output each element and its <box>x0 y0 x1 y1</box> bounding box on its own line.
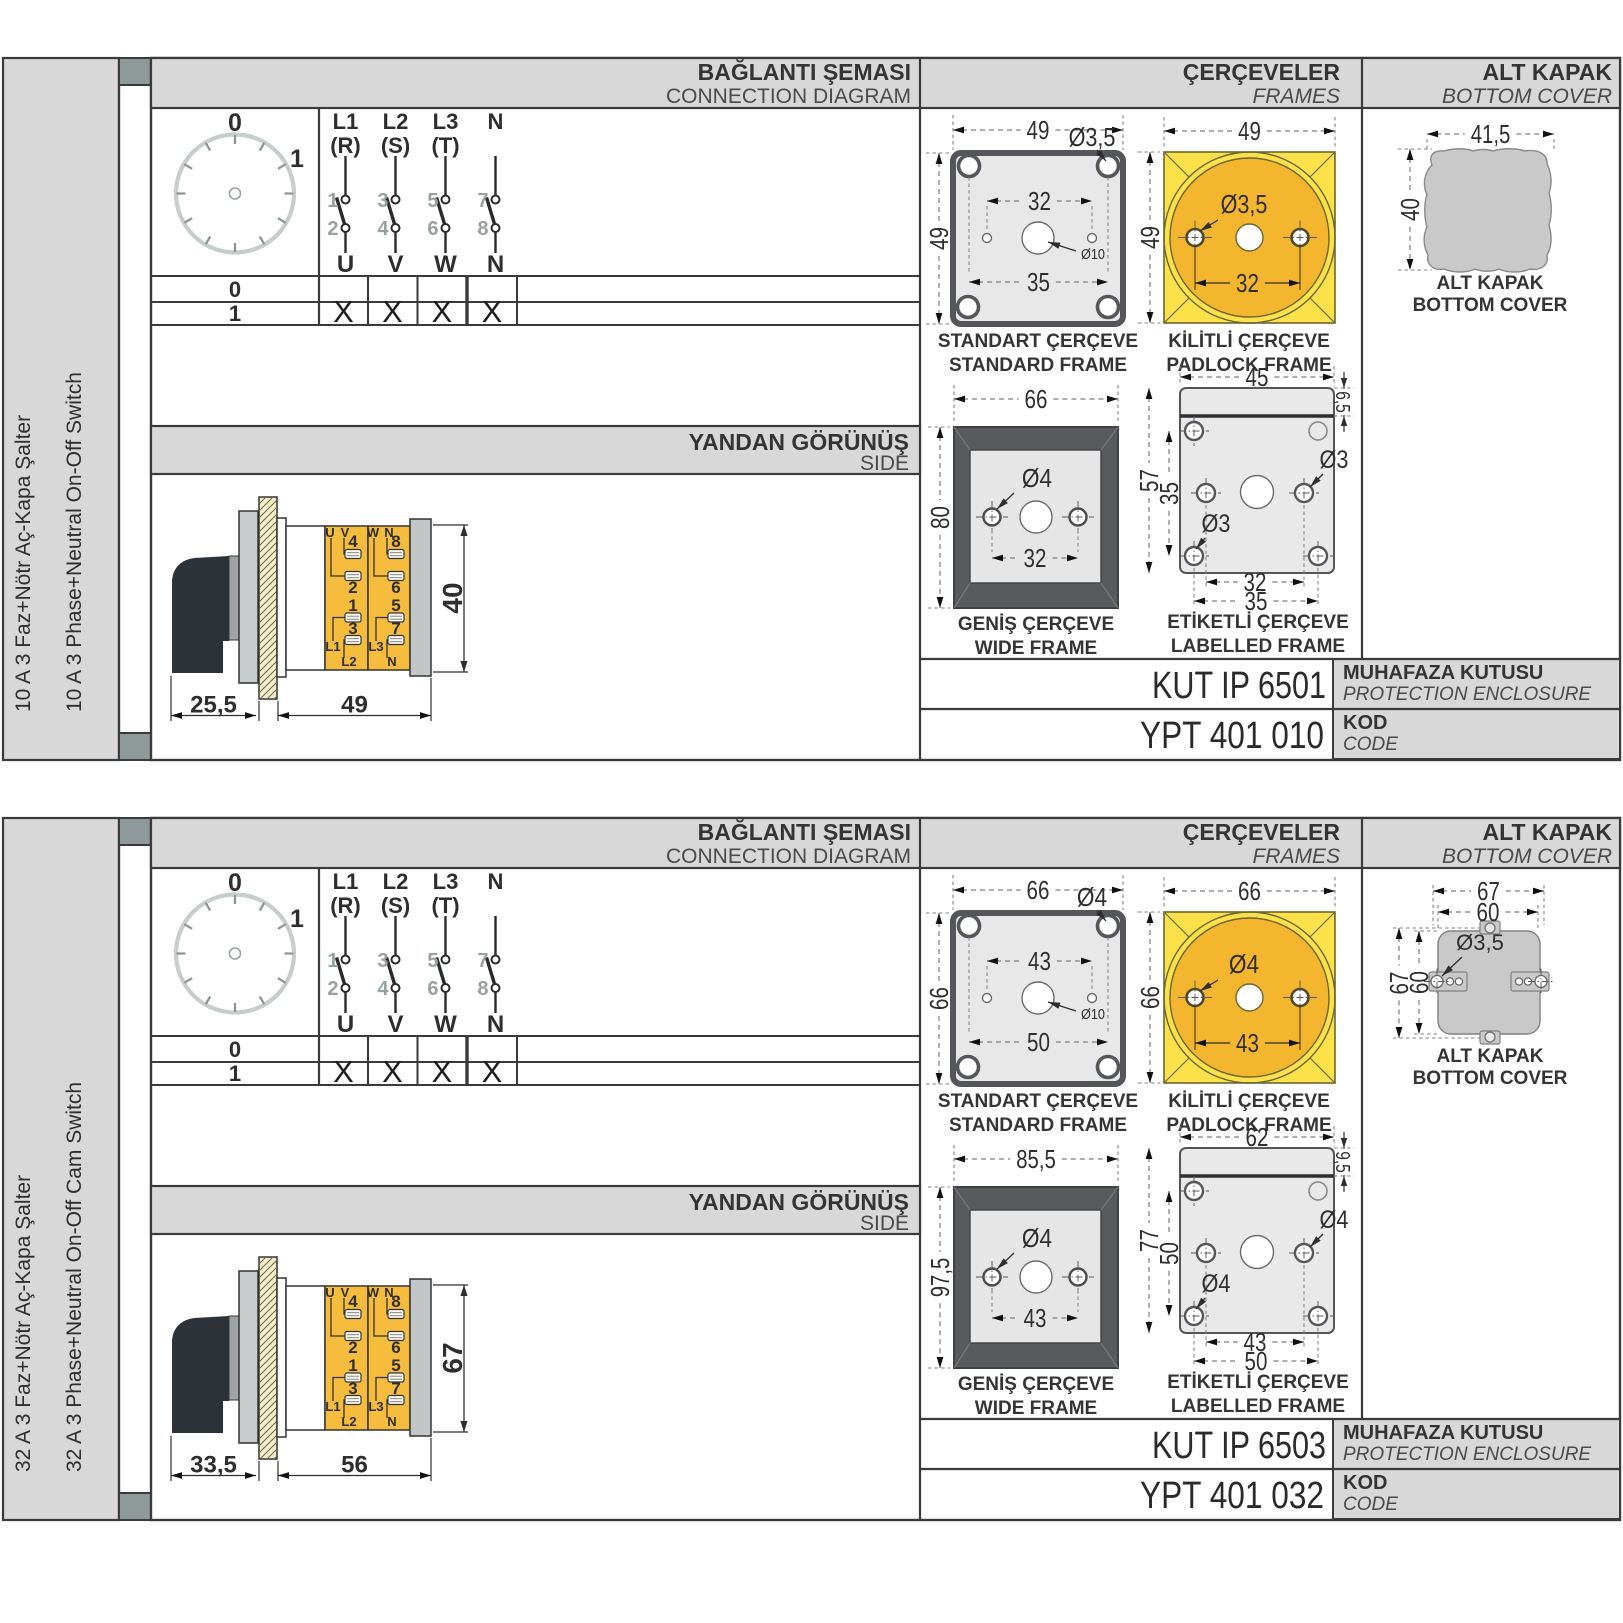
svg-text:6: 6 <box>427 978 438 1000</box>
svg-text:2: 2 <box>327 218 338 240</box>
svg-text:U: U <box>337 1011 354 1038</box>
svg-text:8: 8 <box>391 1292 400 1311</box>
svg-text:67: 67 <box>437 1342 468 1373</box>
svg-text:ETİKETLİ ÇERÇEVE: ETİKETLİ ÇERÇEVE <box>1167 1372 1349 1393</box>
svg-text:1: 1 <box>290 145 304 173</box>
svg-text:ALT KAPAK: ALT KAPAK <box>1483 819 1613 845</box>
svg-text:LABELLED FRAME: LABELLED FRAME <box>1171 636 1345 657</box>
svg-text:0: 0 <box>228 109 242 137</box>
svg-text:49: 49 <box>1135 226 1165 249</box>
svg-text:32: 32 <box>1028 186 1051 216</box>
svg-text:LABELLED FRAME: LABELLED FRAME <box>1171 1396 1345 1417</box>
svg-text:45: 45 <box>1246 362 1269 392</box>
svg-text:STANDARD FRAME: STANDARD FRAME <box>949 1115 1127 1136</box>
svg-text:60: 60 <box>1404 971 1434 994</box>
svg-text:43: 43 <box>1024 1303 1047 1333</box>
svg-text:2: 2 <box>348 1338 357 1357</box>
svg-text:W: W <box>434 1011 457 1038</box>
svg-text:WIDE FRAME: WIDE FRAME <box>975 1398 1097 1419</box>
svg-text:80: 80 <box>925 506 955 529</box>
svg-text:5: 5 <box>391 596 400 615</box>
svg-text:BOTTOM COVER: BOTTOM COVER <box>1442 85 1612 108</box>
svg-text:Ø4: Ø4 <box>1022 1223 1052 1253</box>
svg-text:ALT KAPAK: ALT KAPAK <box>1483 59 1613 85</box>
svg-text:ÇERÇEVELER: ÇERÇEVELER <box>1183 819 1341 845</box>
svg-text:3: 3 <box>377 190 388 212</box>
svg-text:L1: L1 <box>333 869 359 894</box>
svg-text:CODE: CODE <box>1343 1494 1398 1515</box>
svg-text:L3: L3 <box>433 109 459 134</box>
svg-text:7: 7 <box>477 190 488 212</box>
svg-text:GENİŞ ÇERÇEVE: GENİŞ ÇERÇEVE <box>958 1374 1114 1395</box>
svg-text:49: 49 <box>1238 116 1261 146</box>
svg-text:SIDE: SIDE <box>860 452 909 475</box>
svg-text:5: 5 <box>427 950 438 972</box>
svg-text:FRAMES: FRAMES <box>1252 845 1340 868</box>
svg-text:N: N <box>387 1414 396 1429</box>
svg-text:1: 1 <box>327 190 338 212</box>
svg-text:STANDARD FRAME: STANDARD FRAME <box>949 355 1127 376</box>
svg-text:3: 3 <box>377 950 388 972</box>
svg-text:0: 0 <box>229 1037 241 1062</box>
svg-text:YPT 401 010: YPT 401 010 <box>1140 715 1324 757</box>
svg-text:CONNECTION DIAGRAM: CONNECTION DIAGRAM <box>666 85 911 108</box>
svg-text:YPT 401 032: YPT 401 032 <box>1140 1475 1324 1517</box>
svg-text:Ø10: Ø10 <box>1081 1006 1105 1023</box>
svg-text:ETİKETLİ ÇERÇEVE: ETİKETLİ ÇERÇEVE <box>1167 612 1349 633</box>
svg-text:25,5: 25,5 <box>190 692 237 719</box>
svg-text:PROTECTION ENCLOSURE: PROTECTION ENCLOSURE <box>1343 684 1591 705</box>
svg-text:BOTTOM COVER: BOTTOM COVER <box>1413 1068 1568 1089</box>
svg-text:L2: L2 <box>383 109 409 134</box>
svg-text:8: 8 <box>391 532 400 551</box>
svg-text:CONNECTION DIAGRAM: CONNECTION DIAGRAM <box>666 845 911 868</box>
svg-text:L3: L3 <box>368 639 383 654</box>
svg-text:1: 1 <box>348 1356 357 1375</box>
svg-text:56: 56 <box>341 1452 368 1479</box>
svg-text:4: 4 <box>348 532 358 551</box>
svg-text:3: 3 <box>348 1379 357 1398</box>
svg-text:(R): (R) <box>330 133 361 158</box>
svg-text:BAĞLANTI ŞEMASI: BAĞLANTI ŞEMASI <box>698 818 911 845</box>
svg-text:X: X <box>333 294 354 329</box>
svg-text:N: N <box>387 654 396 669</box>
svg-text:10 A 3 Faz+Nötr Aç-Kapa Şalter: 10 A 3 Faz+Nötr Aç-Kapa Şalter <box>12 415 35 712</box>
svg-text:32 A 3 Faz+Nötr Aç-Kapa Şalter: 32 A 3 Faz+Nötr Aç-Kapa Şalter <box>12 1175 35 1472</box>
svg-text:40: 40 <box>437 582 468 613</box>
svg-text:66: 66 <box>1027 875 1050 905</box>
svg-text:KİLİTLİ ÇERÇEVE: KİLİTLİ ÇERÇEVE <box>1168 331 1330 352</box>
svg-text:50: 50 <box>1027 1027 1050 1057</box>
svg-text:(R): (R) <box>330 893 361 918</box>
svg-text:N: N <box>487 1011 504 1038</box>
svg-text:Ø3: Ø3 <box>1320 446 1349 474</box>
svg-text:40: 40 <box>1395 198 1425 221</box>
svg-text:BOTTOM COVER: BOTTOM COVER <box>1442 845 1612 868</box>
svg-text:ALT KAPAK: ALT KAPAK <box>1437 1046 1544 1067</box>
svg-text:X: X <box>382 294 403 329</box>
svg-text:Ø3,5: Ø3,5 <box>1221 189 1268 219</box>
svg-text:35: 35 <box>1154 482 1184 505</box>
svg-text:50: 50 <box>1154 1242 1184 1265</box>
svg-text:X: X <box>333 1054 354 1089</box>
svg-text:X: X <box>382 1054 403 1089</box>
svg-text:KİLİTLİ ÇERÇEVE: KİLİTLİ ÇERÇEVE <box>1168 1091 1330 1112</box>
svg-text:(S): (S) <box>381 893 410 918</box>
svg-text:X: X <box>432 294 453 329</box>
svg-text:7: 7 <box>391 1379 400 1398</box>
svg-text:W: W <box>367 1285 380 1300</box>
svg-text:4: 4 <box>377 218 389 240</box>
svg-text:8: 8 <box>477 978 488 1000</box>
svg-text:33,5: 33,5 <box>190 1452 237 1479</box>
svg-text:L1: L1 <box>333 109 359 134</box>
svg-text:66: 66 <box>924 987 954 1010</box>
svg-text:X: X <box>482 294 503 329</box>
svg-text:L1: L1 <box>325 639 340 654</box>
svg-text:97,5: 97,5 <box>925 1258 955 1298</box>
svg-text:7: 7 <box>477 950 488 972</box>
svg-text:7: 7 <box>391 619 400 638</box>
svg-text:X: X <box>432 1054 453 1089</box>
svg-text:1: 1 <box>229 1061 241 1086</box>
svg-text:KUT IP 6503: KUT IP 6503 <box>1152 1425 1326 1467</box>
svg-text:66: 66 <box>1238 876 1261 906</box>
svg-text:60: 60 <box>1477 897 1500 927</box>
svg-text:9,5: 9,5 <box>1331 1151 1353 1173</box>
svg-text:0: 0 <box>228 869 242 897</box>
svg-text:W: W <box>434 251 457 278</box>
svg-text:49: 49 <box>924 227 954 250</box>
svg-text:ÇERÇEVELER: ÇERÇEVELER <box>1183 59 1341 85</box>
svg-text:L2: L2 <box>341 1414 356 1429</box>
svg-text:3: 3 <box>348 619 357 638</box>
svg-text:49: 49 <box>341 692 368 719</box>
svg-text:32: 32 <box>1236 268 1259 298</box>
svg-text:L3: L3 <box>368 1399 383 1414</box>
svg-text:0: 0 <box>229 277 241 302</box>
svg-text:66: 66 <box>1135 986 1165 1009</box>
svg-text:1: 1 <box>290 905 304 933</box>
svg-text:STANDART ÇERÇEVE: STANDART ÇERÇEVE <box>938 331 1138 352</box>
svg-text:Ø4: Ø4 <box>1320 1206 1349 1234</box>
svg-text:6: 6 <box>391 1338 400 1357</box>
svg-text:Ø4: Ø4 <box>1022 463 1052 493</box>
svg-text:32 A 3 Phase+Neutral On-Off Ca: 32 A 3 Phase+Neutral On-Off Cam Switch <box>63 1082 86 1472</box>
svg-text:32: 32 <box>1024 543 1047 573</box>
svg-text:(T): (T) <box>431 893 459 918</box>
svg-text:BOTTOM COVER: BOTTOM COVER <box>1413 295 1568 316</box>
svg-text:V: V <box>387 251 403 278</box>
svg-text:X: X <box>482 1054 503 1089</box>
svg-text:V: V <box>387 1011 403 1038</box>
svg-text:FRAMES: FRAMES <box>1252 85 1340 108</box>
svg-text:SIDE: SIDE <box>860 1212 909 1235</box>
svg-text:(T): (T) <box>431 133 459 158</box>
svg-text:U: U <box>325 1285 334 1300</box>
svg-text:66: 66 <box>1025 384 1048 414</box>
svg-text:GENİŞ ÇERÇEVE: GENİŞ ÇERÇEVE <box>958 614 1114 635</box>
svg-text:4: 4 <box>377 978 389 1000</box>
svg-text:L1: L1 <box>325 1399 340 1414</box>
svg-text:10 A 3 Phase+Neutral On-Off Sw: 10 A 3 Phase+Neutral On-Off Switch <box>63 372 86 712</box>
svg-text:N: N <box>487 251 504 278</box>
svg-text:ALT KAPAK: ALT KAPAK <box>1437 273 1544 294</box>
svg-text:MUHAFAZA KUTUSU: MUHAFAZA KUTUSU <box>1343 662 1543 684</box>
svg-text:4: 4 <box>348 1292 358 1311</box>
svg-text:(S): (S) <box>381 133 410 158</box>
svg-text:Ø3,5: Ø3,5 <box>1069 122 1116 152</box>
svg-text:1: 1 <box>348 596 357 615</box>
svg-text:62: 62 <box>1246 1122 1269 1152</box>
svg-text:W: W <box>367 525 380 540</box>
svg-text:6,5: 6,5 <box>1331 391 1353 413</box>
svg-text:85,5: 85,5 <box>1016 1144 1056 1174</box>
svg-text:Ø10: Ø10 <box>1081 246 1105 263</box>
svg-text:43: 43 <box>1028 946 1051 976</box>
svg-text:Ø4: Ø4 <box>1229 949 1259 979</box>
svg-text:43: 43 <box>1236 1028 1259 1058</box>
svg-text:8: 8 <box>477 218 488 240</box>
svg-text:KUT IP 6501: KUT IP 6501 <box>1152 665 1326 707</box>
svg-text:U: U <box>325 525 334 540</box>
svg-text:BAĞLANTI ŞEMASI: BAĞLANTI ŞEMASI <box>698 58 911 85</box>
svg-text:N: N <box>488 869 504 894</box>
svg-text:2: 2 <box>348 578 357 597</box>
svg-text:L3: L3 <box>433 869 459 894</box>
svg-text:PROTECTION ENCLOSURE: PROTECTION ENCLOSURE <box>1343 1444 1591 1465</box>
svg-text:Ø4: Ø4 <box>1077 882 1107 912</box>
svg-text:L2: L2 <box>383 869 409 894</box>
svg-text:L2: L2 <box>341 654 356 669</box>
svg-text:KOD: KOD <box>1343 1472 1387 1494</box>
svg-text:35: 35 <box>1027 267 1050 297</box>
svg-text:1: 1 <box>327 950 338 972</box>
svg-text:49: 49 <box>1027 115 1050 145</box>
svg-text:WIDE FRAME: WIDE FRAME <box>975 638 1097 659</box>
svg-text:MUHAFAZA KUTUSU: MUHAFAZA KUTUSU <box>1343 1422 1543 1444</box>
svg-text:1: 1 <box>229 301 241 326</box>
svg-text:41,5: 41,5 <box>1471 119 1511 149</box>
svg-text:U: U <box>337 251 354 278</box>
svg-text:5: 5 <box>391 1356 400 1375</box>
svg-text:STANDART ÇERÇEVE: STANDART ÇERÇEVE <box>938 1091 1138 1112</box>
svg-text:2: 2 <box>327 978 338 1000</box>
svg-text:N: N <box>488 109 504 134</box>
svg-text:Ø3,5: Ø3,5 <box>1456 930 1504 955</box>
svg-text:5: 5 <box>427 190 438 212</box>
svg-text:6: 6 <box>391 578 400 597</box>
svg-text:KOD: KOD <box>1343 712 1387 734</box>
svg-text:6: 6 <box>427 218 438 240</box>
svg-text:CODE: CODE <box>1343 734 1398 755</box>
